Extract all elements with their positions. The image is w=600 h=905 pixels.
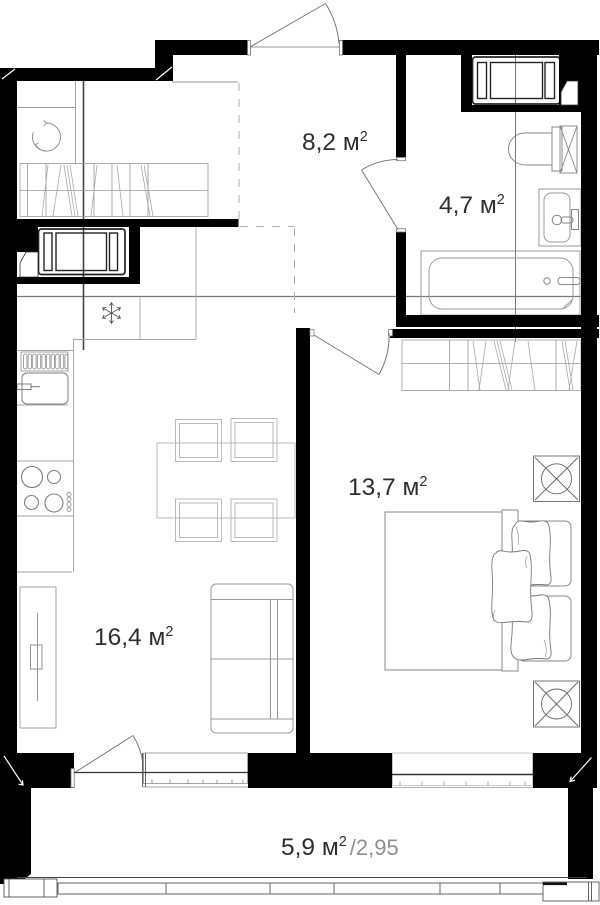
svg-text:8,2 м2: 8,2 м2 — [302, 129, 368, 156]
svg-text:13,7 м2: 13,7 м2 — [348, 474, 427, 501]
svg-text:4,7 м2: 4,7 м2 — [439, 192, 505, 219]
svg-text:16,4 м2: 16,4 м2 — [94, 624, 173, 651]
